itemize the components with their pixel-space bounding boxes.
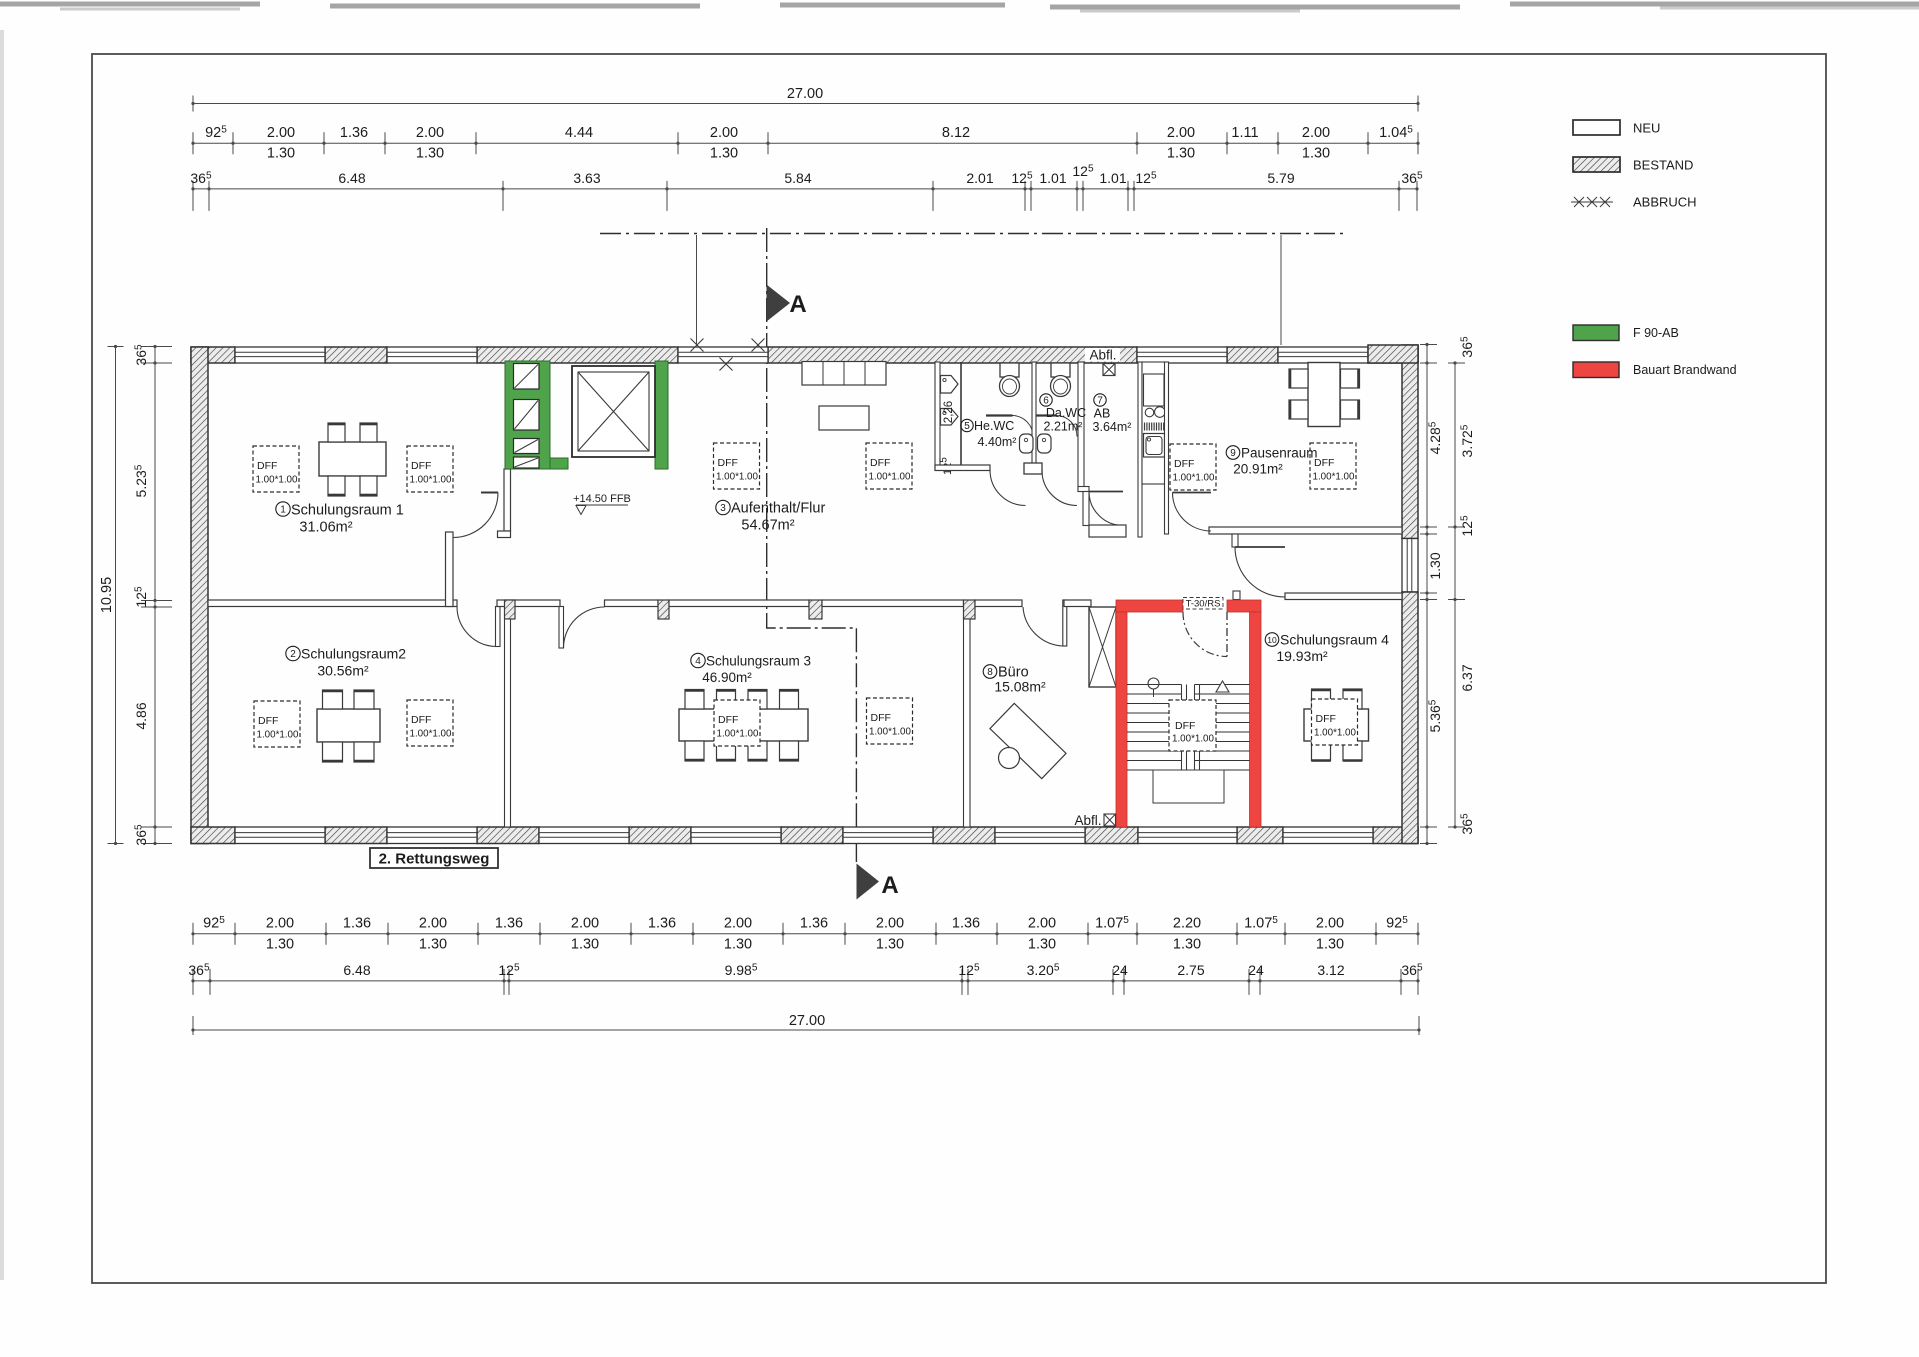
svg-text:15.08m²: 15.08m² [994, 679, 1046, 695]
svg-text:1.00*1.00: 1.00*1.00 [1172, 734, 1214, 745]
svg-text:1.30: 1.30 [1173, 937, 1201, 953]
svg-text:1.36: 1.36 [952, 916, 980, 932]
svg-text:30.56m²: 30.56m² [317, 663, 369, 679]
svg-text:2.01: 2.01 [966, 170, 993, 186]
svg-text:8.12: 8.12 [942, 125, 970, 141]
svg-text:A: A [789, 291, 806, 318]
svg-text:4.40m²: 4.40m² [978, 435, 1017, 449]
svg-text:T-30/RS: T-30/RS [1186, 599, 1221, 610]
svg-text:1.36: 1.36 [648, 916, 676, 932]
svg-text:+14.50 FFB: +14.50 FFB [573, 493, 631, 505]
svg-text:7: 7 [1097, 395, 1103, 406]
svg-text:1.30: 1.30 [267, 146, 295, 162]
svg-text:F 90-AB: F 90-AB [1633, 326, 1679, 340]
svg-text:1.00*1.00: 1.00*1.00 [869, 727, 911, 738]
svg-text:2.00: 2.00 [1316, 916, 1344, 932]
svg-text:1.30: 1.30 [1427, 552, 1443, 579]
svg-text:2.00: 2.00 [724, 916, 752, 932]
svg-text:Pausenraum: Pausenraum [1241, 446, 1318, 461]
svg-text:54.67m²: 54.67m² [741, 518, 794, 534]
svg-text:1.00*1.00: 1.00*1.00 [717, 729, 759, 740]
svg-text:1.36: 1.36 [340, 125, 368, 141]
svg-text:1.00*1.00: 1.00*1.00 [410, 729, 452, 740]
svg-text:DFF: DFF [1175, 720, 1195, 732]
svg-text:2.20: 2.20 [1173, 916, 1201, 932]
svg-text:1.30: 1.30 [1302, 146, 1330, 162]
svg-text:1.00*1.00: 1.00*1.00 [716, 472, 758, 483]
svg-text:1.00*1.00: 1.00*1.00 [257, 730, 299, 741]
svg-text:4.44: 4.44 [565, 125, 593, 141]
svg-text:1.30: 1.30 [1028, 937, 1056, 953]
svg-text:Abfl.: Abfl. [1074, 813, 1101, 828]
svg-text:DFF: DFF [1174, 458, 1194, 470]
svg-text:27.00: 27.00 [787, 86, 823, 102]
svg-text:6.48: 6.48 [338, 170, 365, 186]
svg-text:1.30: 1.30 [1316, 937, 1344, 953]
svg-text:2: 2 [290, 649, 296, 660]
svg-text:4.86: 4.86 [133, 702, 149, 729]
svg-text:AB: AB [1094, 407, 1111, 421]
svg-text:1.00*1.00: 1.00*1.00 [1313, 472, 1355, 483]
svg-text:Schulungsraum 3: Schulungsraum 3 [706, 654, 811, 669]
svg-text:27.00: 27.00 [789, 1013, 825, 1029]
svg-text:2.00: 2.00 [1302, 125, 1330, 141]
svg-text:6.37: 6.37 [1459, 664, 1475, 691]
svg-text:2,26: 2,26 [943, 401, 955, 423]
svg-text:2.00: 2.00 [1167, 125, 1195, 141]
svg-text:He.WC: He.WC [974, 419, 1014, 433]
svg-text:1.00*1.00: 1.00*1.00 [410, 475, 452, 486]
svg-text:Schulungsraum 1: Schulungsraum 1 [291, 503, 404, 519]
svg-text:Bauart Brandwand: Bauart Brandwand [1633, 363, 1737, 377]
svg-text:Schulungsraum2: Schulungsraum2 [301, 646, 406, 662]
svg-text:5.84: 5.84 [784, 170, 811, 186]
svg-text:2.00: 2.00 [710, 125, 738, 141]
svg-text:DFF: DFF [1316, 713, 1336, 725]
svg-text:2.00: 2.00 [266, 916, 294, 932]
svg-text:6: 6 [1043, 395, 1049, 406]
svg-text:BESTAND: BESTAND [1633, 158, 1693, 173]
svg-text:2.00: 2.00 [419, 916, 447, 932]
svg-text:8: 8 [987, 667, 993, 678]
svg-text:2.21m²: 2.21m² [1044, 420, 1083, 434]
svg-text:2.00: 2.00 [1028, 916, 1056, 932]
svg-text:1.30: 1.30 [724, 937, 752, 953]
svg-text:1.30: 1.30 [571, 937, 599, 953]
svg-text:3.64m²: 3.64m² [1093, 420, 1132, 434]
svg-text:24: 24 [1248, 962, 1264, 978]
svg-text:9: 9 [1230, 448, 1236, 459]
svg-text:10: 10 [1267, 635, 1277, 645]
svg-text:Aufenthalt/Flur: Aufenthalt/Flur [731, 501, 825, 517]
svg-text:2.00: 2.00 [571, 916, 599, 932]
svg-text:1.11: 1.11 [1231, 125, 1258, 141]
svg-text:1.30: 1.30 [1167, 146, 1195, 162]
svg-text:3: 3 [720, 503, 726, 514]
svg-text:DFF: DFF [870, 457, 890, 469]
svg-text:Da.WC: Da.WC [1046, 406, 1086, 420]
svg-text:DFF: DFF [411, 460, 431, 472]
svg-text:1.30: 1.30 [710, 146, 738, 162]
svg-text:5: 5 [964, 421, 970, 432]
svg-text:DFF: DFF [258, 715, 278, 727]
svg-text:3.63: 3.63 [573, 170, 600, 186]
svg-text:1.30: 1.30 [266, 937, 294, 953]
svg-text:1.00*1.00: 1.00*1.00 [869, 472, 911, 483]
svg-text:20.91m²: 20.91m² [1233, 462, 1283, 477]
svg-text:31.06m²: 31.06m² [299, 520, 352, 536]
svg-text:NEU: NEU [1633, 121, 1660, 136]
svg-text:1: 1 [280, 504, 286, 515]
svg-text:1.30: 1.30 [419, 937, 447, 953]
svg-text:2.00: 2.00 [416, 125, 444, 141]
svg-text:5.79: 5.79 [1267, 170, 1294, 186]
svg-text:Abfl.: Abfl. [1089, 348, 1116, 363]
svg-text:1.30: 1.30 [416, 146, 444, 162]
svg-text:2.00: 2.00 [267, 125, 295, 141]
svg-text:1.36: 1.36 [343, 916, 371, 932]
svg-text:1.36: 1.36 [800, 916, 828, 932]
svg-text:19.93m²: 19.93m² [1276, 648, 1328, 664]
svg-text:2.75: 2.75 [1177, 962, 1204, 978]
svg-text:1.36: 1.36 [495, 916, 523, 932]
svg-text:DFF: DFF [257, 460, 277, 472]
svg-text:1.01: 1.01 [1039, 170, 1066, 186]
svg-text:1.30: 1.30 [876, 937, 904, 953]
svg-text:DFF: DFF [718, 457, 738, 469]
svg-text:ABBRUCH: ABBRUCH [1633, 195, 1697, 210]
svg-text:3.12: 3.12 [1317, 962, 1344, 978]
svg-text:1.01: 1.01 [1099, 170, 1126, 186]
svg-text:DFF: DFF [411, 714, 431, 726]
svg-text:10.95: 10.95 [99, 577, 115, 613]
svg-text:6.48: 6.48 [343, 962, 370, 978]
svg-text:24: 24 [1112, 962, 1128, 978]
svg-text:Schulungsraum 4: Schulungsraum 4 [1280, 632, 1389, 648]
svg-text:46.90m²: 46.90m² [702, 670, 752, 685]
svg-text:DFF: DFF [871, 712, 891, 724]
svg-text:4: 4 [695, 656, 701, 667]
svg-text:2.00: 2.00 [876, 916, 904, 932]
svg-text:1.00*1.00: 1.00*1.00 [256, 475, 298, 486]
svg-text:2. Rettungsweg: 2. Rettungsweg [379, 851, 490, 868]
svg-text:1.00*1.00: 1.00*1.00 [1173, 473, 1215, 484]
svg-text:1.00*1.00: 1.00*1.00 [1314, 728, 1356, 739]
svg-text:DFF: DFF [718, 714, 738, 726]
svg-text:A: A [881, 872, 898, 899]
